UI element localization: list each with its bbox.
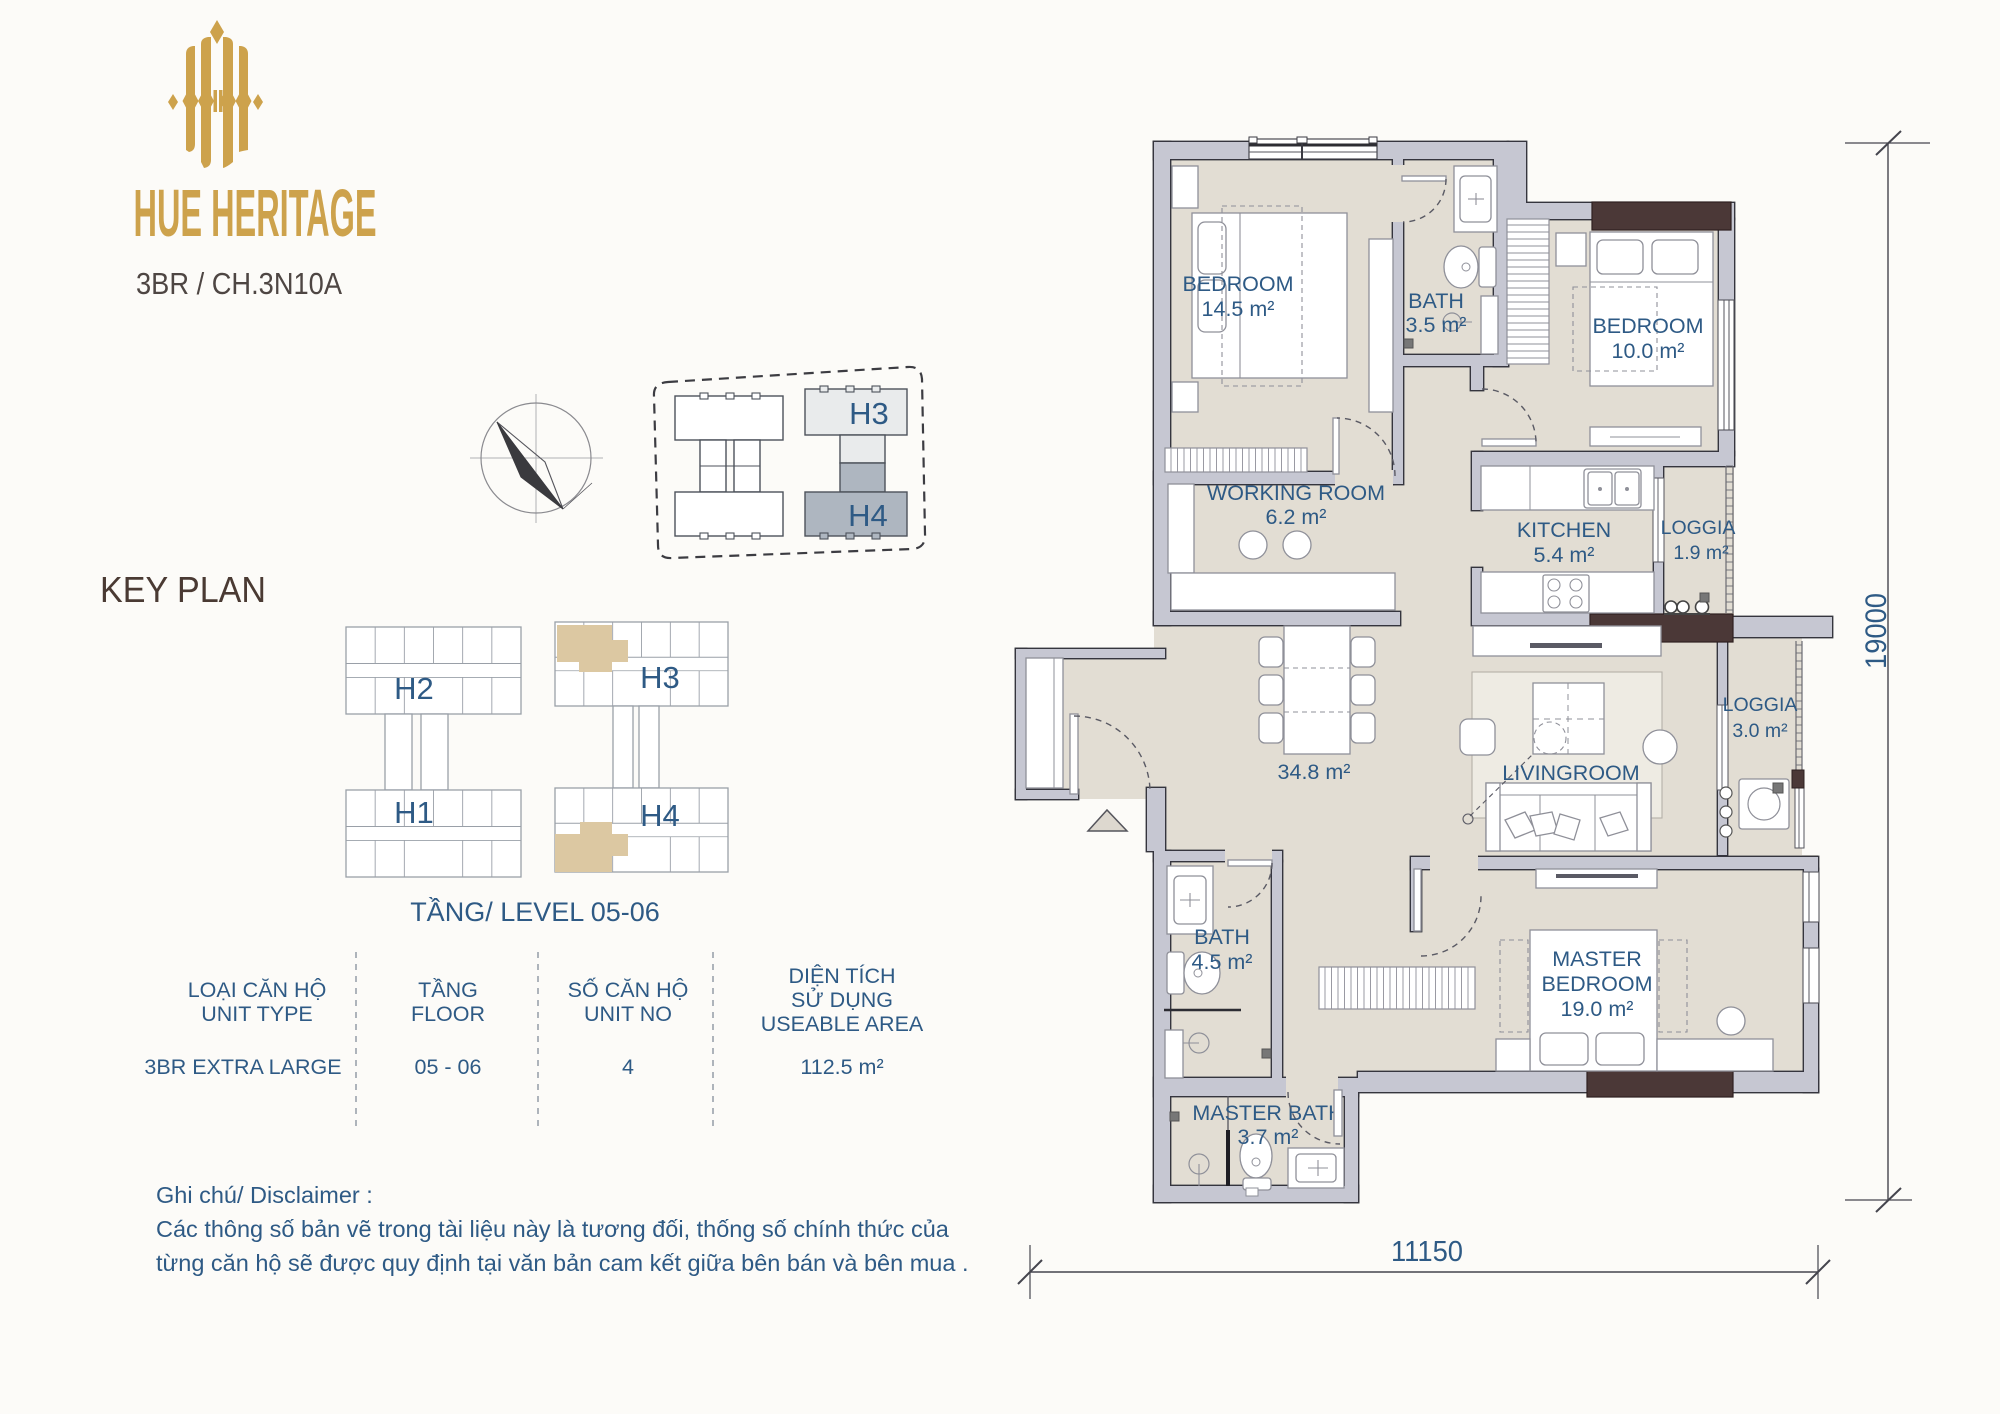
svg-text:05 - 06: 05 - 06 xyxy=(415,1055,482,1079)
svg-text:H4: H4 xyxy=(848,498,888,533)
svg-text:14.5 m²: 14.5 m² xyxy=(1202,297,1275,321)
svg-text:SỐ CĂN HỘ: SỐ CĂN HỘ xyxy=(568,976,689,1002)
svg-text:5.4 m²: 5.4 m² xyxy=(1534,543,1595,567)
svg-text:112.5 m²: 112.5 m² xyxy=(800,1055,883,1079)
svg-text:Các thông số bản vẽ trong tài: Các thông số bản vẽ trong tài liệu này l… xyxy=(156,1216,950,1242)
svg-text:3BR / CH.3N10A: 3BR / CH.3N10A xyxy=(136,266,342,301)
svg-text:BEDROOM: BEDROOM xyxy=(1182,272,1293,296)
svg-text:WORKING ROOM: WORKING ROOM xyxy=(1207,481,1385,505)
svg-text:BEDROOM: BEDROOM xyxy=(1592,314,1703,338)
svg-text:H2: H2 xyxy=(394,671,434,706)
svg-text:USEABLE AREA: USEABLE AREA xyxy=(761,1012,924,1036)
svg-text:H3: H3 xyxy=(640,660,680,695)
svg-text:TẦNG: TẦNG xyxy=(418,977,478,1002)
svg-text:KITCHEN: KITCHEN xyxy=(1517,518,1611,542)
svg-text:11150: 11150 xyxy=(1391,1236,1463,1268)
svg-text:3BR EXTRA LARGE: 3BR EXTRA LARGE xyxy=(144,1055,341,1079)
svg-text:UNIT TYPE: UNIT TYPE xyxy=(201,1002,313,1026)
svg-text:LOGGIA: LOGGIA xyxy=(1661,517,1736,539)
svg-text:TẦNG/ LEVEL 05-06: TẦNG/ LEVEL 05-06 xyxy=(410,896,660,927)
svg-text:H1: H1 xyxy=(394,795,434,830)
svg-text:BATH: BATH xyxy=(1194,925,1250,949)
svg-text:MASTER: MASTER xyxy=(1552,947,1642,971)
svg-text:KEY PLAN: KEY PLAN xyxy=(100,569,266,610)
svg-text:MASTER BATH: MASTER BATH xyxy=(1192,1101,1343,1125)
svg-text:BEDROOM: BEDROOM xyxy=(1541,972,1652,996)
svg-text:UNIT NO: UNIT NO xyxy=(584,1002,672,1026)
svg-text:BATH: BATH xyxy=(1408,289,1464,313)
svg-text:6.2 m²: 6.2 m² xyxy=(1266,505,1327,529)
svg-text:34.8 m²: 34.8 m² xyxy=(1278,760,1351,784)
svg-text:3.7 m²: 3.7 m² xyxy=(1238,1125,1299,1149)
svg-text:3.0 m²: 3.0 m² xyxy=(1732,720,1788,742)
svg-text:LOẠI CĂN HỘ: LOẠI CĂN HỘ xyxy=(188,977,327,1002)
svg-text:19.0 m²: 19.0 m² xyxy=(1561,997,1634,1021)
svg-text:FLOOR: FLOOR xyxy=(411,1002,485,1026)
svg-text:HUE HERITAGE: HUE HERITAGE xyxy=(134,176,377,251)
svg-text:Ghi chú/ Disclaimer :: Ghi chú/ Disclaimer : xyxy=(156,1182,373,1208)
svg-text:H3: H3 xyxy=(849,396,889,431)
svg-text:H4: H4 xyxy=(640,798,680,833)
svg-text:LIVINGROOM: LIVINGROOM xyxy=(1502,761,1639,785)
svg-text:DIỆN TÍCH: DIỆN TÍCH xyxy=(788,963,895,988)
svg-text:19000: 19000 xyxy=(1860,593,1893,669)
svg-text:LOGGIA: LOGGIA xyxy=(1723,694,1798,716)
svg-text:từng căn hộ sẽ được quy định t: từng căn hộ sẽ được quy định tại văn bản… xyxy=(156,1250,969,1276)
svg-text:10.0 m²: 10.0 m² xyxy=(1612,339,1685,363)
svg-text:4.5 m²: 4.5 m² xyxy=(1192,950,1253,974)
svg-text:3.5 m²: 3.5 m² xyxy=(1406,313,1467,337)
svg-text:SỬ DỤNG: SỬ DỤNG xyxy=(791,987,893,1012)
svg-text:4: 4 xyxy=(622,1055,634,1079)
svg-text:1.9 m²: 1.9 m² xyxy=(1673,542,1729,564)
